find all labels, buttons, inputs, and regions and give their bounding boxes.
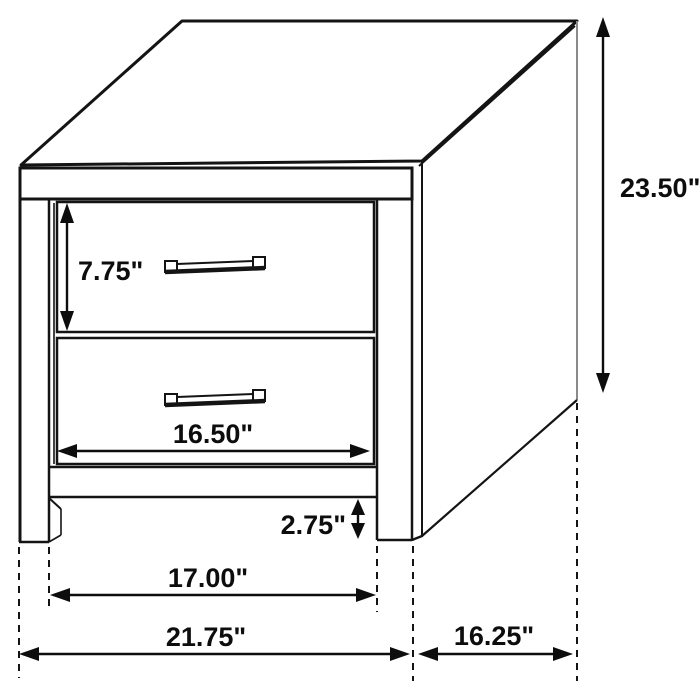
left-leg-inner-taper [49,535,61,542]
arrowhead-left-icon [19,647,39,661]
dimension-overall-height: 23.50" [596,17,700,393]
dimension-label-overall-height: 23.50" [620,173,700,203]
arrowhead-down-icon [351,523,365,539]
dimension-label-overall-width: 21.75" [166,622,246,652]
dimension-label-top-drawer-height: 7.75" [78,256,143,286]
arrowhead-right-icon [553,647,573,661]
arrowhead-left-icon [418,647,438,661]
nightstand-dimension-diagram: 23.50" 7.75" 16.50" 2.75" 17 [0,0,700,700]
dimension-label-depth: 16.25" [454,621,534,651]
arrowhead-right-icon [356,588,376,602]
arrowhead-down-icon [596,373,610,393]
dimension-inner-leg-span: 17.00" [50,563,376,602]
top-face [21,21,577,165]
dimension-label-drawer-width: 16.50" [173,419,253,449]
dimension-depth: 16.25" [418,621,573,661]
arrowhead-right-icon [390,647,410,661]
left-leg-bracket [49,498,61,509]
dimension-overall-width: 21.75" [19,622,410,661]
diagram-canvas: 23.50" 7.75" 16.50" 2.75" 17 [0,0,700,700]
dimension-label-base-clearance: 2.75" [281,510,346,540]
right-leg-bottom-side [412,536,422,540]
arrowhead-up-icon [596,17,610,37]
side-panel-bottom-edge [422,400,577,536]
arrowhead-left-icon [50,588,70,602]
dimension-base-clearance: 2.75" [281,499,365,540]
arrowhead-up-icon [351,499,365,515]
dimension-label-inner-leg-span: 17.00" [168,563,248,593]
top-edge-band [20,168,412,199]
